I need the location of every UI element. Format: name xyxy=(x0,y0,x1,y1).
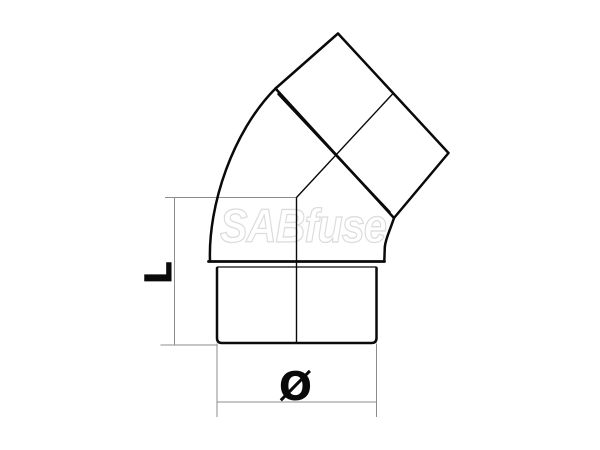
dimension-label-diameter: Ø xyxy=(279,365,312,410)
technical-drawing-page: SABfuse L Ø xyxy=(0,0,600,450)
upper-socket-outline xyxy=(276,34,449,219)
watermark-text: SABfuse xyxy=(220,199,386,252)
dimension-label-length: L xyxy=(138,261,181,285)
joint-double-line-inner xyxy=(279,94,390,212)
angled-centerline xyxy=(297,94,394,198)
elbow-45-technical-drawing: SABfuse L Ø xyxy=(0,0,600,450)
